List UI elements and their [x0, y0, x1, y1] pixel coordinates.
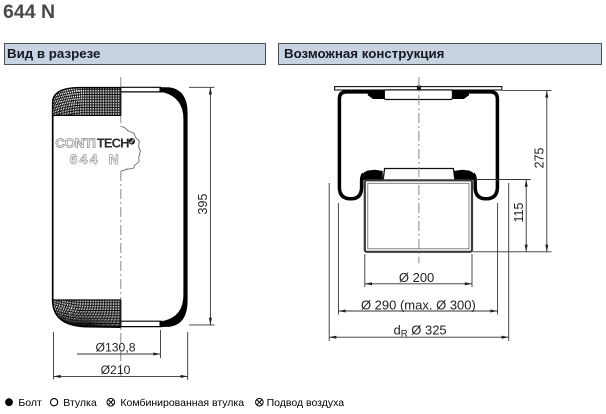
svg-text:Болт: Болт [18, 397, 42, 409]
svg-text:275: 275 [532, 148, 546, 169]
svg-text:Комбинированная втулка: Комбинированная втулка [120, 397, 244, 409]
svg-text:115: 115 [512, 202, 526, 222]
svg-text:Подвод воздуха: Подвод воздуха [267, 397, 345, 409]
svg-text:395: 395 [196, 194, 210, 215]
svg-text:N: N [109, 151, 119, 167]
svg-text:Ø 290 (max. Ø 300): Ø 290 (max. Ø 300) [361, 297, 476, 312]
svg-text:Втулка: Втулка [63, 397, 97, 409]
svg-text:Ø130,8: Ø130,8 [96, 341, 136, 355]
svg-text:644: 644 [70, 151, 100, 167]
svg-text:TECH: TECH [97, 136, 129, 151]
svg-text:dR Ø 325: dR Ø 325 [394, 323, 447, 340]
svg-text:Ø210: Ø210 [101, 363, 131, 377]
svg-text:Ø 200: Ø 200 [399, 270, 434, 285]
svg-text:CONTI: CONTI [55, 136, 95, 151]
